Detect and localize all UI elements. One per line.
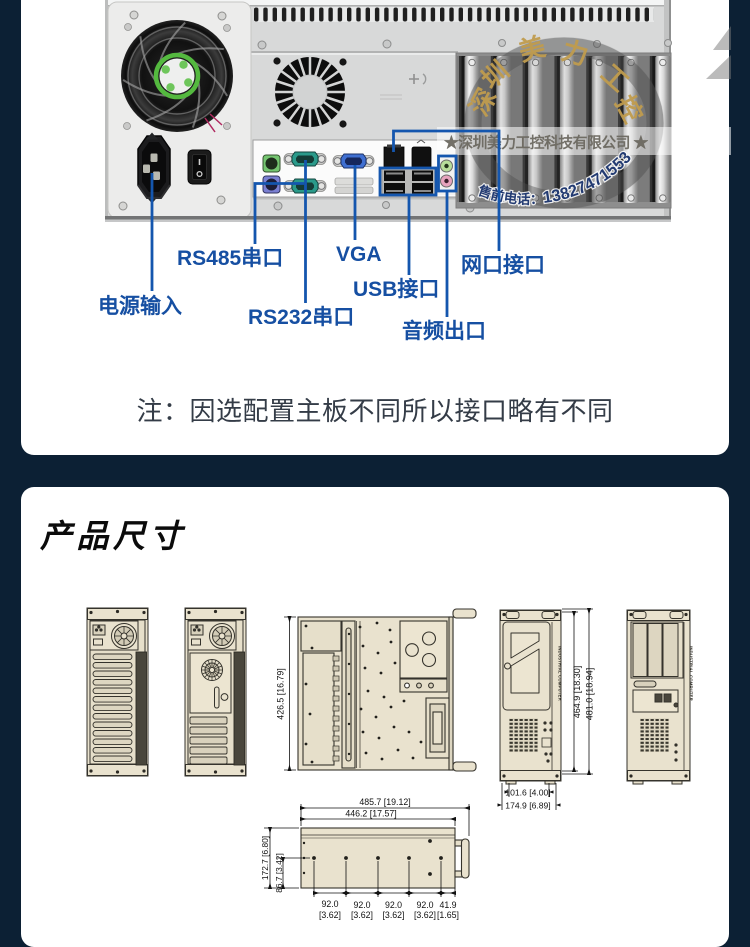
svg-text:464.9 [18.30]: 464.9 [18.30] [572, 666, 582, 719]
svg-text:41.9: 41.9 [439, 900, 456, 910]
svg-text:426.5 [16.79]: 426.5 [16.79] [276, 668, 286, 719]
svg-text:92.0: 92.0 [353, 900, 370, 910]
svg-text:[1.65]: [1.65] [437, 910, 459, 920]
svg-text:[3.62]: [3.62] [414, 910, 436, 920]
svg-text:[3.62]: [3.62] [382, 910, 404, 920]
svg-text:86.7 [3.42]: 86.7 [3.42] [274, 853, 284, 893]
svg-text:446.2 [17.57]: 446.2 [17.57] [345, 809, 396, 819]
svg-text:101.6 [4.00]: 101.6 [4.00] [505, 788, 550, 798]
svg-text:92.0: 92.0 [416, 900, 433, 910]
svg-text:485.7 [19.12]: 485.7 [19.12] [359, 797, 410, 807]
svg-text:92.0: 92.0 [321, 899, 338, 909]
svg-text:172.7 [6.80]: 172.7 [6.80] [260, 836, 270, 880]
svg-text:[3.62]: [3.62] [319, 910, 341, 920]
svg-text:481.0 [18.94]: 481.0 [18.94] [585, 668, 595, 721]
svg-text:92.0: 92.0 [385, 900, 402, 910]
svg-text:174.9 [6.89]: 174.9 [6.89] [505, 801, 550, 811]
svg-text:[3.62]: [3.62] [351, 910, 373, 920]
svg-text:INDUSTRIAL COMPUTER: INDUSTRIAL COMPUTER [689, 646, 694, 701]
svg-text:INDUSTRIAL COMPUTER: INDUSTRIAL COMPUTER [558, 646, 563, 701]
